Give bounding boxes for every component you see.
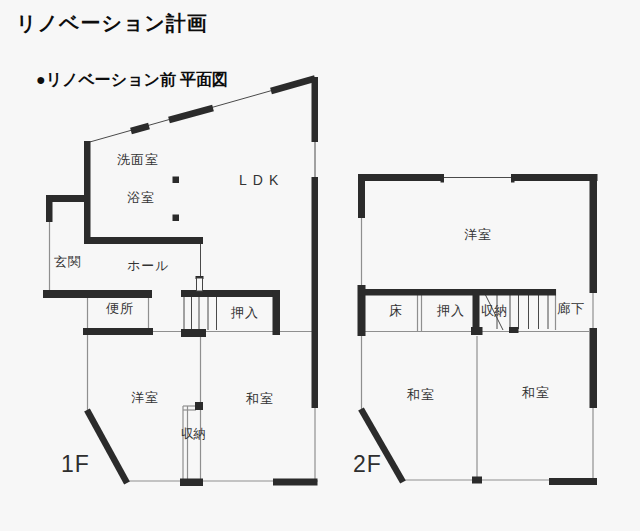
wall-1f-under-stairs [181,329,206,337]
room-label-1f-futon-closet: 押入 [231,306,259,319]
room-label-1f-ldk: LDK [239,173,284,187]
wall-1f-entrance-stub [46,195,53,222]
wall-1f-diagonal-seg-2 [169,108,213,120]
floor-label-1f: 1F [61,453,90,476]
wall-1f-bath-bottom [84,237,203,244]
wall-1f-right-upper [312,77,319,142]
room-label-1f-washroom: 洗面室 [117,153,159,166]
room-label-2f-corridor: 廊下 [557,302,585,315]
post-2f-divider-bottom [472,477,482,484]
post-1f-washroom [173,177,180,184]
wall-2f-left-upper [358,174,365,218]
floor-label-2f: 2F [353,453,382,476]
room-label-1f-japanese-room: 和室 [246,392,274,405]
wall-1f-left [84,141,91,244]
wall-2f-midrow-top [358,289,556,296]
room-label-1f-storage: 収納 [181,428,206,441]
floorplan-1f [43,77,318,486]
window-cap-2f-right [511,174,515,183]
wall-1f-closet-right [273,290,281,335]
wall-1f-toilet-bottom [83,328,153,335]
wall-2f-top-left [358,174,443,181]
room-label-2f-futon-closet: 押入 [437,304,465,317]
room-label-2f-japanese-room-left: 和室 [407,388,435,401]
wall-2f-right-mid [590,328,598,408]
window-cap-2f-left [441,174,445,183]
renovation-plan-page: リノベーション計画 ●リノベーション前 平面図 [0,0,640,531]
wall-1f-stairs-top [181,290,280,297]
wall-1f-storage-bottom [180,479,203,487]
post-1f-bathroom [173,215,180,222]
room-label-2f-western-room: 洋室 [464,228,492,241]
post-2f-storage-left [471,327,483,335]
floorplan-drawing [0,0,640,531]
wall-1f-entrance-top [46,195,90,202]
storage-1f-post [195,402,203,410]
wall-1f-right-main [312,177,319,408]
room-label-1f-bathroom: 浴室 [127,191,155,204]
room-label-2f-storage: 収納 [481,304,507,317]
room-label-1f-western-room: 洋室 [131,391,159,404]
wall-1f-bottom-right [273,479,318,486]
wall-2f-right-upper [590,174,598,293]
wall-1f-diagonal-seg-3 [271,79,315,92]
wall-1f-entrance-bottom [43,290,152,298]
wall-2f-top-right [512,174,598,181]
wall-1f-bottom-left-diagonal [87,410,127,483]
wall-1f-diagonal-seg-1 [131,126,149,131]
wall-2f-bottom-right [549,478,597,485]
room-label-1f-entrance: 玄関 [54,255,82,268]
room-label-2f-alcove: 床 [389,304,403,317]
post-2f-storage-right [509,327,519,333]
room-label-1f-toilet: 便所 [106,302,134,315]
room-label-1f-hall: ホール [127,259,170,272]
room-label-2f-japanese-room-right: 和室 [522,386,550,399]
door-1f-stairs-marker [197,278,203,291]
floorplan-2f [358,174,598,485]
